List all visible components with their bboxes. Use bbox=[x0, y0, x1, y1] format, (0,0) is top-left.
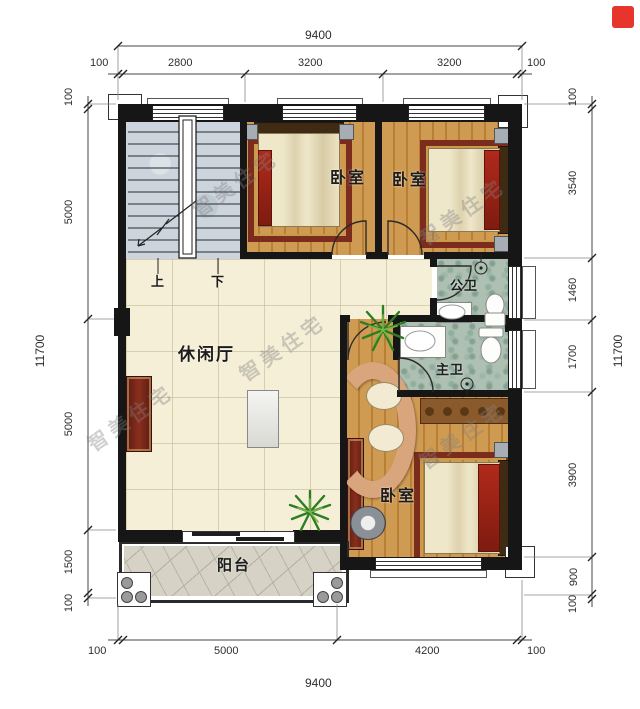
hall-corridor-floor bbox=[340, 259, 432, 319]
brand-logo-mark bbox=[612, 6, 634, 28]
bedroom-2-label: 卧室 bbox=[392, 166, 428, 190]
wall-bath-master-left bbox=[393, 322, 400, 360]
dim-right-total: 11700 bbox=[611, 335, 625, 367]
dim-bottom-5000: 5000 bbox=[214, 645, 238, 657]
balcony-post-left bbox=[117, 572, 151, 607]
dim-top-3200b: 3200 bbox=[437, 57, 461, 69]
dim-right-900: 900 bbox=[568, 568, 580, 586]
dim-right-1460: 1460 bbox=[567, 278, 579, 302]
window-bedroom2 bbox=[408, 106, 485, 120]
dim-right-100T: 100 bbox=[567, 88, 579, 106]
wall-hall-bedroom3 bbox=[340, 322, 347, 557]
stair-up-label: 上 bbox=[151, 271, 166, 290]
side-table bbox=[350, 506, 386, 540]
sofa-cushion-2 bbox=[368, 424, 404, 452]
dim-bottom-4200: 4200 bbox=[415, 645, 439, 657]
coffee-table bbox=[247, 390, 279, 448]
bedroom-3-label: 卧室 bbox=[380, 482, 416, 506]
wall-hall-bottom-left bbox=[118, 530, 182, 542]
bedroom-1-label: 卧室 bbox=[330, 164, 366, 188]
wall-bedroom1-bedroom2 bbox=[375, 122, 382, 259]
wall-hall-bottom-right bbox=[293, 530, 347, 542]
bath-master-label: 主卫 bbox=[436, 359, 464, 378]
dim-left-5000a: 5000 bbox=[63, 200, 75, 224]
stair-down-label: 下 bbox=[211, 271, 226, 290]
dim-left-100T: 100 bbox=[63, 88, 75, 106]
dim-top-2800: 2800 bbox=[168, 57, 192, 69]
dim-left-total: 11700 bbox=[33, 335, 47, 367]
window-bedroom3 bbox=[375, 558, 482, 569]
bedroom-3-blanket bbox=[478, 464, 500, 552]
window-sill-bath-master bbox=[522, 330, 536, 389]
wall-bedrooms-bottom-c bbox=[424, 252, 522, 259]
balcony-sliding-door bbox=[182, 531, 295, 543]
wall-bath-master-bottom bbox=[397, 390, 522, 397]
bath-public-label: 公卫 bbox=[450, 275, 478, 294]
dim-top-100R: 100 bbox=[527, 57, 545, 69]
balcony-label: 阳台 bbox=[217, 554, 251, 575]
dim-right-3900: 3900 bbox=[567, 463, 579, 487]
dim-bottom-100R: 100 bbox=[527, 645, 545, 657]
window-stair bbox=[152, 106, 224, 120]
window-sill-bath-public bbox=[522, 266, 536, 319]
window-bath-public bbox=[509, 266, 521, 319]
leisure-hall-label: 休闲厅 bbox=[178, 340, 235, 365]
wall-left-pilaster bbox=[114, 308, 130, 336]
dim-top-100L: 100 bbox=[90, 57, 108, 69]
wall-corridor-stub bbox=[340, 315, 350, 322]
dim-left-100B: 100 bbox=[63, 594, 75, 612]
window-bath-master bbox=[509, 330, 521, 389]
dim-right-3540: 3540 bbox=[567, 171, 579, 195]
dim-right-1700: 1700 bbox=[567, 345, 579, 369]
dim-top-total: 9400 bbox=[305, 28, 332, 42]
floor-plan: 卧室 卧室 卧室 公卫 主卫 休闲厅 阳台 上 下 智美住宅 智美住宅 智美住宅… bbox=[0, 0, 640, 709]
wall-baths-top bbox=[388, 315, 522, 322]
balcony-post-right bbox=[313, 572, 347, 607]
dim-top-3200a: 3200 bbox=[298, 57, 322, 69]
dim-bottom-total: 9400 bbox=[305, 676, 332, 690]
wall-bedrooms-bottom-a bbox=[240, 252, 332, 259]
dim-right-100B: 100 bbox=[567, 595, 579, 613]
wall-bedrooms-bottom-b bbox=[366, 252, 388, 259]
wall-bath-public-left-a bbox=[430, 259, 437, 267]
bedroom-1-nightstand-right bbox=[339, 124, 354, 140]
bath-master-sink-counter bbox=[400, 326, 446, 358]
window-bedroom1 bbox=[282, 106, 357, 120]
dim-left-5000b: 5000 bbox=[63, 412, 75, 436]
dim-left-1500: 1500 bbox=[63, 550, 75, 574]
dim-bottom-100L: 100 bbox=[88, 645, 106, 657]
window-sill-bedroom3 bbox=[370, 570, 487, 578]
